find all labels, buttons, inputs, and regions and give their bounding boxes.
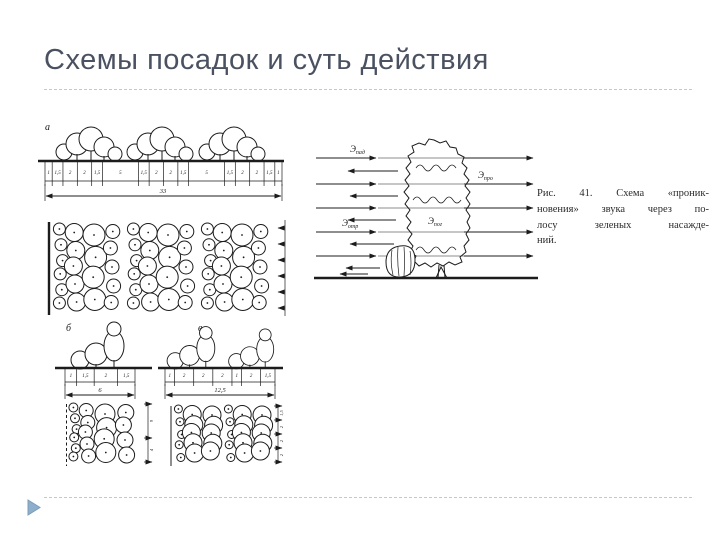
dim-value: 2 [250,374,253,379]
dim-value: 2 [256,171,259,176]
figure-caption: Рис. 41. Схема «проник- новения» звука ч… [537,186,709,249]
dim-value: 2 [155,171,158,176]
footer-divider [44,497,692,498]
label-incident-energy: Эпад [350,144,365,156]
dim-value: 2 [183,374,186,379]
section-v: в 1222121,5 12,5 1,5222 [158,323,285,466]
dimension-strip-v: 1222121,5 [165,368,275,386]
section-b-label: б [66,323,72,334]
dim-value: 2 [279,453,284,456]
dim-total: 33 [159,188,167,195]
shrub [386,246,415,277]
dim-value: 2 [69,171,72,176]
dim-total: 6 [98,387,102,394]
slide: Схемы посадок и суть действия [0,0,720,540]
slide-footer-triangle-icon [26,499,43,516]
crown-cluster [53,223,120,311]
dim-value: 2 [202,374,205,379]
total-dimension-b: 6 [65,384,135,399]
tree-trunk [436,265,447,278]
dim-value: 2 [169,171,172,176]
dim-value: 2 [105,374,108,379]
dim-value: 1,5 [279,409,285,415]
dim-value: 1 [235,374,238,379]
dim-value: 1,5 [94,171,101,176]
dim-value: 5 [205,171,208,176]
dim-value: 2 [279,425,284,428]
section-a-plan [49,220,285,316]
dim-value: 5 [119,171,122,176]
dim-value: 1,5 [227,171,234,176]
section-a-elevation: а 11,5221,551,5221,551,5221,51 33 [38,122,284,201]
dim-value: 1,5 [266,171,273,176]
dim-value: 1,5 [180,171,187,176]
dim-value: 1 [47,171,50,176]
crown-cluster [201,223,268,311]
label-transmitted-energy: Эпро [478,170,493,182]
dim-value: 1 [277,171,280,176]
dim-value: 1,5 [265,374,272,379]
plan-a-dimension-ticks [278,228,285,308]
dim-value: 4 [149,448,154,451]
total-dimension-v: 12,5 [165,384,275,399]
crown-cluster [224,405,272,462]
crown-cluster [69,403,135,463]
title-divider [44,89,692,90]
planting-schemes-figure: а 11,5221,551,5221,551,5221,51 33 б [30,116,292,484]
caption-line: ний. [537,233,709,249]
dim-value: 2 [83,171,86,176]
plan-v-dimensions: 1,5222 [274,406,285,462]
caption-line: Рис. 41. Схема «проник- [537,186,709,202]
dim-value: 9 [149,419,154,422]
section-a-label: а [45,122,50,133]
dim-value: 1 [70,374,73,379]
dimension-strip-b: 11,521,5 [65,368,135,386]
dim-total: 12,5 [214,387,226,394]
page-title: Схемы посадок и суть действия [44,44,489,77]
dim-value: 1,5 [82,374,89,379]
dim-value: 2 [221,374,224,379]
dim-value: 2 [279,439,284,442]
dim-value: 1,5 [123,374,130,379]
dim-value: 1,5 [54,171,61,176]
transmitted-sound-arrows [464,158,533,256]
dimension-strip-a: 11,5221,551,5221,551,5221,51 [45,161,282,186]
crown-cluster [174,405,222,462]
total-dimension-a: 33 [45,184,282,201]
caption-line: лосу зеленых насажде- [537,218,709,234]
dim-value: 1,5 [141,171,148,176]
sound-penetration-figure: Эпад Эотр Эпро Эпог [312,128,542,294]
section-b: б 11,521,5 6 94 [55,322,154,466]
dim-value: 2 [241,171,244,176]
plan-b-dimensions: 94 [144,404,154,462]
incident-sound-arrows [316,158,376,256]
caption-line: новения» звука через по- [537,202,709,218]
dim-value: 1 [169,374,172,379]
crown-cluster [127,223,194,311]
